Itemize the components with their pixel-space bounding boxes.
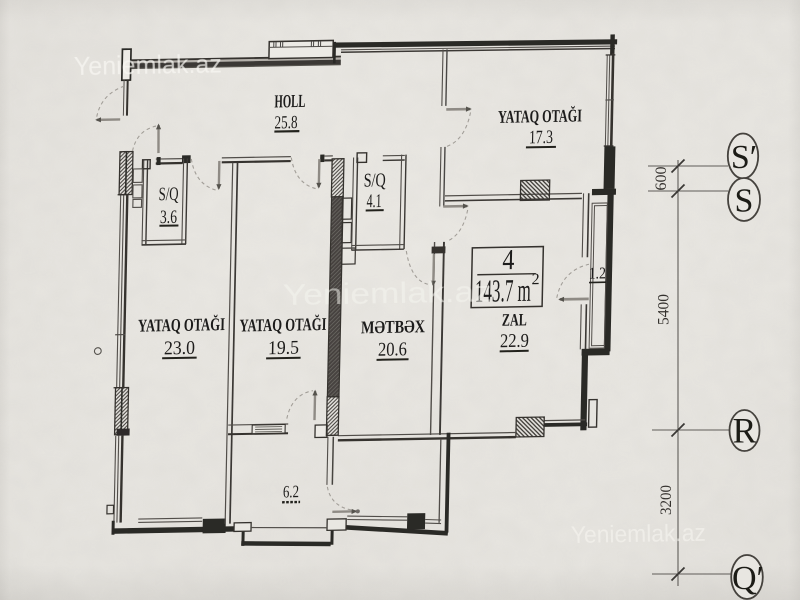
svg-text:YATAQ OTAĞI: YATAQ OTAĞI: [498, 104, 582, 127]
svg-text:17.3: 17.3: [529, 127, 553, 148]
svg-text:19.5: 19.5: [268, 338, 299, 360]
svg-text:20.6: 20.6: [378, 339, 408, 361]
svg-text:HOLL: HOLL: [274, 92, 305, 113]
svg-text:Yeniemlak.az: Yeniemlak.az: [283, 275, 493, 312]
svg-text:Yeniemlak.az: Yeniemlak.az: [571, 520, 706, 549]
svg-text:22.9: 22.9: [500, 331, 529, 353]
svg-text:2: 2: [531, 271, 539, 288]
svg-text:5400: 5400: [656, 294, 673, 325]
svg-text:1.2: 1.2: [589, 263, 606, 282]
svg-text:6.2: 6.2: [283, 481, 299, 501]
svg-text:YATAQ OTAĞI: YATAQ OTAĞI: [138, 313, 225, 336]
svg-text:4.1: 4.1: [366, 191, 381, 212]
svg-text:600: 600: [653, 166, 670, 190]
svg-text:ZAL: ZAL: [502, 309, 527, 329]
svg-text:Yeniemlak.az: Yeniemlak.az: [74, 48, 223, 81]
svg-text:S: S: [735, 183, 754, 220]
svg-text:23.0: 23.0: [164, 338, 195, 360]
svg-text:S′: S′: [731, 139, 757, 176]
svg-text:MƏTBƏX: MƏTBƏX: [361, 316, 425, 337]
svg-text:R: R: [732, 411, 756, 451]
svg-text:3200: 3200: [658, 485, 675, 515]
svg-text:Q′: Q′: [732, 560, 764, 597]
svg-text:S/Q: S/Q: [363, 170, 385, 191]
svg-text:S/Q: S/Q: [158, 184, 179, 205]
svg-text:YATAQ OTAĞI: YATAQ OTAĞI: [239, 313, 326, 336]
